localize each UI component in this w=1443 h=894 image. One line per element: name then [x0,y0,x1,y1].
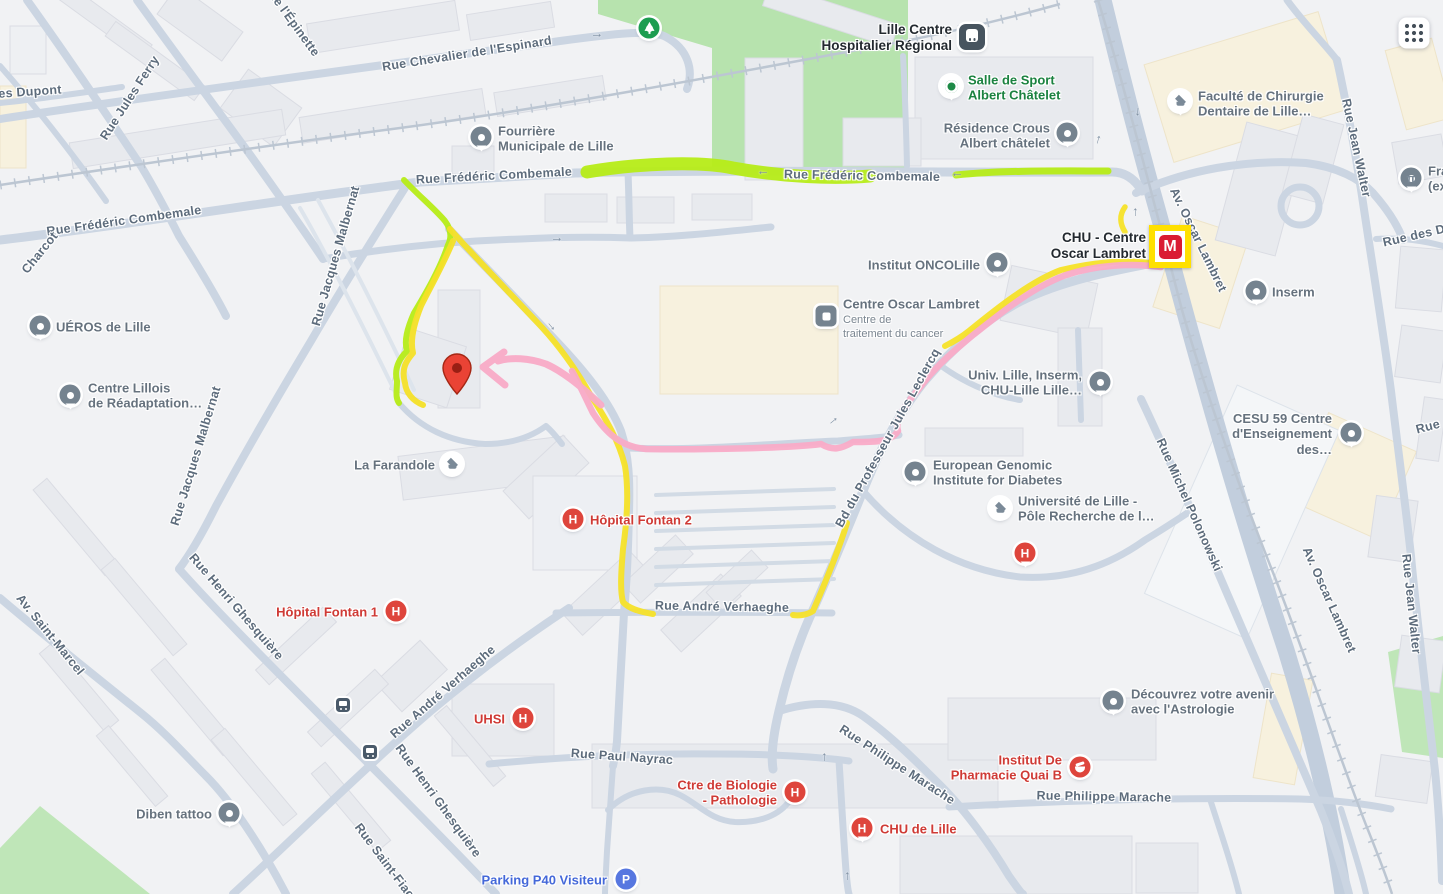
poi-pin-univ-lille-inserm[interactable] [1090,372,1111,393]
oneway-arrow-icon: → [1132,105,1148,119]
poi-pin-ueros[interactable] [30,316,51,337]
poi-label-fontan1[interactable]: Hôpital Fontan 1 [276,604,378,619]
graduation-cap-icon [445,458,459,469]
poi-label-salle-de-sport[interactable]: Salle de Sport Albert Châtelet [968,73,1060,104]
oneway-arrow-icon: → [838,870,853,883]
poi-label-centre-lillois[interactable]: Centre Lillois de Réadaptation… [88,381,202,412]
poi-label-astrologie[interactable]: Découvrez votre avenir avec l'Astrologie [1131,687,1274,718]
poi-label-parking-p40[interactable]: Parking P40 Visiteur [482,872,608,887]
poi-pin-la-farandole[interactable] [442,454,463,475]
metro-m-logo: M [1159,235,1182,259]
poi-label-fourriere[interactable]: Fourrière Municipale de Lille [498,124,614,155]
parking-icon: P [616,869,637,890]
graduation-cap-icon [1173,95,1187,106]
metro-station-icon[interactable]: M [1149,225,1191,268]
station-label-lille-chr[interactable]: Lille Centre Hospitalier Régional [821,22,952,54]
poi-label-uhsi[interactable]: UHSI [474,711,505,726]
oneway-arrow-icon: → [815,751,830,764]
hospital-pin-biologie[interactable]: H [785,782,806,803]
poi-label-centre-oscar-lambret[interactable]: Centre Oscar Lambret [843,296,980,311]
hospital-pin-chu-de-lille[interactable]: H [852,818,873,839]
poi-pin-salle-de-sport[interactable] [941,76,962,97]
poi-pin-residence-crous[interactable] [1057,123,1078,144]
hospital-icon: H [852,818,873,839]
train-station-icon[interactable] [959,24,985,50]
sport-glyph [945,80,958,93]
park-tree-icon[interactable] [639,18,660,39]
pink-arrowhead [483,352,505,385]
bank-icon: π [1401,168,1422,189]
bus-stop-icon[interactable] [336,698,350,712]
poi-pin-faculte-dentaire[interactable] [1170,91,1191,112]
poi-pin-astrologie[interactable] [1103,691,1124,712]
poi-pin-institut-oncolille[interactable] [987,253,1008,274]
street-label: Rue André Verhaeghe [655,598,789,615]
hospital-pin-uhsi[interactable]: H [513,708,534,729]
poi-pin-univ-pole[interactable] [990,498,1011,519]
oneway-arrow-icon: → [551,230,564,245]
poi-label-bank[interactable]: Fra (ex [1428,164,1443,195]
oneway-arrow-icon: → [757,168,770,183]
poi-label-egid[interactable]: European Genomic Institute for Diabetes [933,458,1062,489]
poi-label-pharmacie[interactable]: Institut De Pharmacie Quai B [951,753,1062,784]
poi-pin-cesu59[interactable] [1341,423,1362,444]
hospital-icon: H [386,601,407,622]
poi-label-la-farandole[interactable]: La Farandole [354,457,435,472]
poi-pin-egid[interactable] [905,462,926,483]
parking-pin[interactable]: P [616,869,637,890]
poi-label-chu-de-lille[interactable]: CHU de Lille [880,821,957,836]
poi-label-faculte-dentaire[interactable]: Faculté de Chirurgie Dentaire de Lille… [1198,89,1324,120]
oneway-arrow-icon: → [1126,206,1141,219]
poi-pin-inserm[interactable] [1246,281,1267,302]
apps-grid-icon[interactable] [1399,18,1430,49]
street-label: Rue Frédéric Combemale [784,167,940,184]
hospital-icon: H [785,782,806,803]
map-viewport[interactable]: → → → → → → → → → → → es Dupont Rue Jule… [0,0,1443,894]
poi-label-diben-tattoo[interactable]: Diben tattoo [136,806,212,821]
hospital-icon: H [513,708,534,729]
street-label: Rue Philippe Marache [1036,788,1171,805]
hospital-pin[interactable]: H [1015,543,1036,564]
oneway-arrow-icon: → [951,170,964,185]
tree-glyph [643,21,655,33]
poi-pin-centre-lillois[interactable] [60,385,81,406]
station-label-chu-oscar-lambret[interactable]: CHU - Centre Oscar Lambret [1051,230,1146,262]
metro-icon-inner: M [1155,231,1185,262]
poi-icon-centre-oscar-lambret[interactable] [816,306,837,327]
pharmacy-pin[interactable] [1070,757,1091,778]
poi-pin-diben-tattoo[interactable] [219,803,240,824]
poi-label-univ-lille-inserm[interactable]: Univ. Lille, Inserm, CHU-Lille Lille… [968,368,1082,399]
hospital-pin-fontan1[interactable]: H [386,601,407,622]
pharmacy-mortar-icon [1075,762,1086,772]
poi-label-residence-crous[interactable]: Résidence Crous Albert châtelet [944,121,1050,152]
poi-label-fontan2[interactable]: Hôpital Fontan 2 [590,512,692,527]
hospital-icon: H [1015,543,1036,564]
hospital-icon: H [563,509,584,530]
poi-label-ueros[interactable]: UÉROS de Lille [56,319,151,334]
oneway-arrow-icon: → [591,26,604,41]
route-highlight-yellow [404,207,1149,615]
destination-marker[interactable] [442,353,472,395]
graduation-cap-icon [993,502,1007,513]
poi-label-univ-pole[interactable]: Université de Lille - Pôle Recherche de … [1018,494,1155,525]
poi-label-biologie[interactable]: Ctre de Biologie - Pathologie [677,778,777,809]
poi-pin-bank[interactable]: π [1401,168,1422,189]
poi-label-inserm[interactable]: Inserm [1272,284,1315,299]
poi-label-institut-oncolille[interactable]: Institut ONCOLille [868,257,980,272]
poi-pin-fourriere[interactable] [471,127,492,148]
bus-stop-icon[interactable] [363,745,377,759]
poi-label-cesu59[interactable]: CESU 59 Centre d'Enseignement des… [1221,411,1332,457]
hospital-pin-fontan2[interactable]: H [563,509,584,530]
poi-sublabel-centre-oscar-lambret: Centre de traitement du cancer [843,314,943,342]
